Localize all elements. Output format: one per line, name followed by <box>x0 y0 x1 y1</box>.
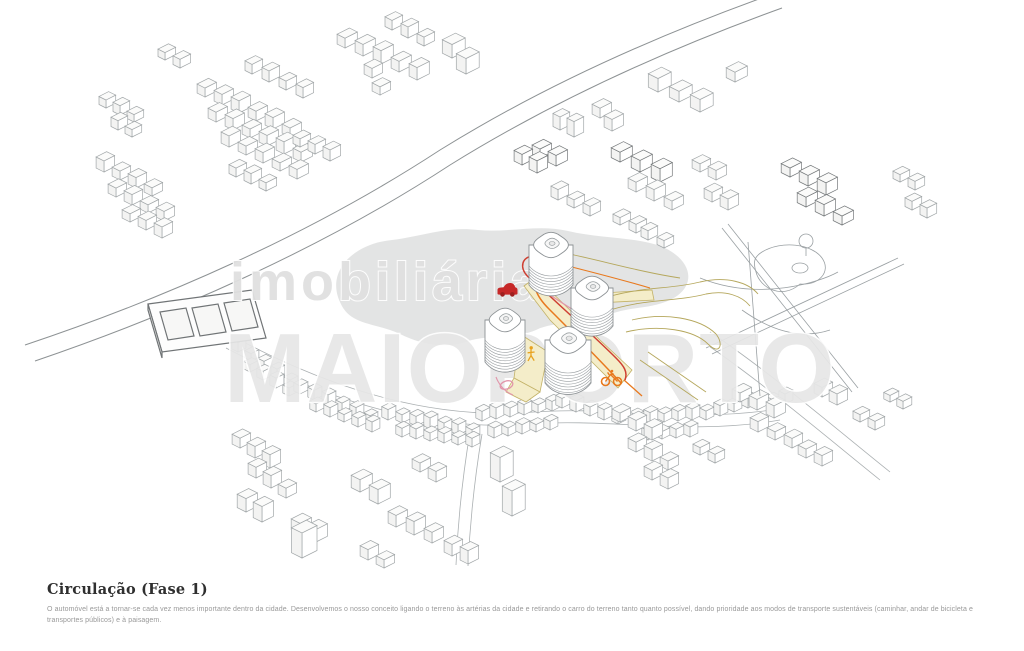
building <box>648 67 671 92</box>
building <box>726 62 747 82</box>
tree-icon <box>799 234 813 248</box>
building <box>424 523 443 543</box>
building <box>388 506 407 527</box>
building <box>406 512 425 535</box>
building <box>214 85 233 105</box>
building <box>690 88 713 112</box>
building <box>583 198 601 216</box>
tower <box>529 232 573 295</box>
building <box>657 232 674 248</box>
building <box>567 191 585 208</box>
building <box>291 520 317 558</box>
building <box>908 173 925 190</box>
building <box>815 195 835 217</box>
building <box>401 18 419 38</box>
building <box>289 160 308 179</box>
building <box>221 126 240 147</box>
building <box>355 34 375 56</box>
building <box>225 109 244 130</box>
tower <box>545 327 591 395</box>
building <box>488 421 502 438</box>
building <box>417 28 435 46</box>
building <box>893 166 910 182</box>
building <box>242 119 261 138</box>
building <box>248 102 267 122</box>
tower <box>571 276 613 336</box>
building <box>631 150 652 172</box>
building <box>670 422 684 438</box>
building <box>279 72 297 90</box>
building <box>797 187 817 207</box>
building <box>396 421 410 437</box>
building <box>245 56 263 74</box>
building <box>551 181 569 200</box>
building <box>490 446 513 482</box>
building <box>265 108 284 129</box>
watermark-imobiliaria-text: imobiliária <box>230 252 544 312</box>
building <box>799 165 819 186</box>
building <box>296 79 314 98</box>
building <box>905 193 922 210</box>
building <box>262 62 280 82</box>
building <box>502 480 525 517</box>
building <box>767 423 786 440</box>
building <box>409 57 429 80</box>
building <box>372 78 391 95</box>
building <box>259 126 278 146</box>
building <box>255 143 274 163</box>
building <box>197 78 216 97</box>
building <box>424 426 438 441</box>
site-plan-diagram: imobiliária MAIOPORTO <box>0 0 1024 651</box>
building <box>664 191 683 210</box>
pond <box>754 245 825 292</box>
building <box>391 51 411 72</box>
building <box>238 136 257 155</box>
building <box>646 180 665 201</box>
building <box>385 12 403 30</box>
building <box>613 209 631 225</box>
building <box>272 153 291 171</box>
caption-body: O automóvel está a tornar-se cada vez me… <box>47 604 983 626</box>
building <box>693 439 710 455</box>
building <box>502 421 516 436</box>
building <box>651 158 672 182</box>
building <box>567 113 584 137</box>
building <box>853 406 870 422</box>
building <box>868 413 885 430</box>
tower <box>485 308 525 372</box>
building <box>611 142 632 162</box>
caption: Circulação (Fase 1) O automóvel está a t… <box>47 581 983 626</box>
page: imobiliária MAIOPORTO <box>0 0 1024 651</box>
building <box>920 200 937 218</box>
building <box>410 422 424 439</box>
building <box>708 446 725 463</box>
building <box>817 173 837 195</box>
building <box>628 173 647 193</box>
building <box>231 91 250 113</box>
building <box>781 158 801 177</box>
building <box>208 103 227 123</box>
building <box>669 80 692 102</box>
building <box>833 206 853 225</box>
caption-title: Circulação (Fase 1) <box>47 581 983 598</box>
building <box>364 59 383 78</box>
building <box>337 28 357 48</box>
